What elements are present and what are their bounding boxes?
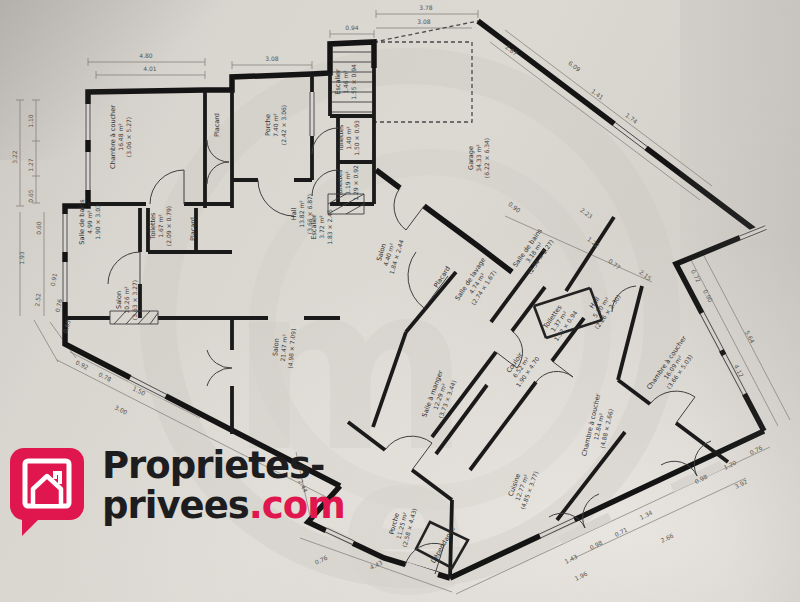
room-label-salon-1026: Salon 10.26 m² (3.63 × 3.27) <box>115 280 138 320</box>
room-area: 4.99 m² <box>86 210 93 234</box>
dim-label: 3.08 <box>417 18 431 25</box>
photo-edge-shadow <box>680 0 800 602</box>
room-area: 34.33 m² <box>475 144 482 172</box>
room-size: (6.22 × 6.34) <box>483 138 490 178</box>
dim-label: 0.60 <box>35 221 42 235</box>
dim-label: 0.77 <box>607 257 622 271</box>
room-name: Toilettes <box>336 169 344 198</box>
dim-label: 1.41 <box>590 87 605 101</box>
dim-label: 1.27 <box>27 158 34 172</box>
room-name: Toilettes <box>337 124 345 153</box>
room-name: Porche <box>264 114 272 136</box>
logo-line1: Proprietes- <box>102 446 345 486</box>
room-size: 1.55 × 0.94 <box>350 64 357 100</box>
dim-label: 1.93 <box>18 251 25 265</box>
dim-label: 0.76 <box>54 298 64 313</box>
dim-label: 1.74 <box>624 111 639 125</box>
room-name: Escalier <box>334 69 342 95</box>
room-size: (3.63 × 3.27) <box>131 280 138 320</box>
room-name: Hall <box>290 208 298 221</box>
logo-line2-pink: .com <box>249 484 345 527</box>
dim-label: 2.52 <box>33 293 41 307</box>
room-area: 10.26 m² <box>123 286 130 314</box>
room-size: 1.50 × 0.93 <box>353 120 360 156</box>
room-area: 1.19 m² <box>344 171 351 195</box>
room-area: 1.67 m² <box>157 214 164 238</box>
photo-corner-shadow <box>0 0 220 160</box>
dim-label: 0.98 <box>588 539 603 551</box>
room-label-salle-de-bains-e: Salle de bains 3.18 m² (2.34 × 2.27) <box>511 226 556 277</box>
logo-line2: privees.com <box>102 486 345 526</box>
dim-label: 2.87 <box>504 43 519 57</box>
logo-wordmark: Proprietes- privees.com <box>102 446 345 526</box>
room-size: 1.83 × 2.45 <box>326 209 333 245</box>
logo-house-icon <box>8 446 88 538</box>
dim-label: 3.08 <box>265 55 279 62</box>
room-size: (2.42 × 3.06) <box>280 105 287 145</box>
room-name: Salon <box>115 291 123 309</box>
room-name: Placard <box>189 217 197 241</box>
room-area: 1.46 m² <box>342 70 349 94</box>
room-size: (2.09 × 0.79) <box>165 206 172 246</box>
dim-label: 2.66 <box>659 532 674 544</box>
room-size: 1.90 × 3.03 <box>94 204 101 240</box>
room-area: 1.40 m² <box>345 126 352 150</box>
logo-line2-black: privees <box>102 484 249 527</box>
dim-label: 3.00 <box>114 404 129 416</box>
proprietes-privees-logo: Proprietes- privees.com <box>8 446 345 538</box>
dim-label: 3.78 <box>419 4 433 11</box>
floor-plan-photo: m e <box>0 0 800 602</box>
dim-label: 1.43 <box>563 553 578 565</box>
room-area: 3.72 m² <box>318 215 325 239</box>
room-name: Salle de bains <box>78 199 86 245</box>
dim-label: 6.09 <box>567 59 582 73</box>
room-label-placard-w: Placard <box>189 217 197 241</box>
room-size: 1.29 × 0.92 <box>352 165 359 201</box>
room-name: Escalier <box>310 214 318 240</box>
room-area: 13.82 m² <box>298 200 305 228</box>
dim-label: 1.34 <box>638 509 653 521</box>
dim-label: 2.23 <box>579 206 594 220</box>
dim-label: 1.96 <box>573 570 588 582</box>
room-name: Garage <box>467 146 475 170</box>
dim-label: 0.65 <box>27 189 34 203</box>
dim-label: 0.91 <box>49 272 58 287</box>
room-label-toilettes-140: Toilettes 1.40 m² 1.50 × 0.93 <box>337 120 360 156</box>
dim-label: 0.94 <box>345 24 359 31</box>
room-name: Toilettes <box>149 212 157 241</box>
room-area: 7.40 m² <box>272 113 279 137</box>
